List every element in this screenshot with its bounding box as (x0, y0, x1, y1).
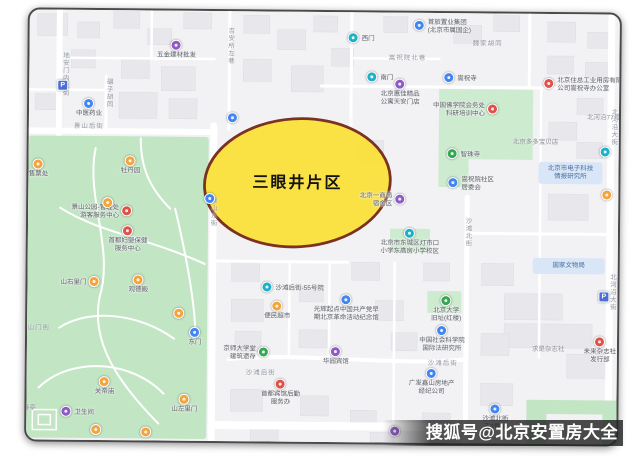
highlight-area-label: 三眼井片区 (197, 168, 397, 194)
pin-label: 牡丹园 (65, 167, 195, 176)
area-label: 北河沿77号院 (587, 111, 622, 121)
map-pin[interactable] (261, 281, 272, 292)
pin-label: 中医药业 (24, 109, 154, 118)
map-canvas[interactable]: 三眼井片区 五金建材批发中医药业西门售票处牡丹园景山公园-管理处游客服务中心观德… (24, 7, 622, 446)
pin-label: 首都宾馆后勤服务办 (215, 390, 345, 406)
map-pin[interactable] (489, 403, 500, 414)
pin-label: 中国佛学院会务处科研培训中心 (355, 101, 485, 117)
pin-label: 智珠寺 (461, 151, 481, 159)
map-pin[interactable] (178, 394, 189, 405)
pin-label: 西门 (362, 35, 375, 43)
map-pin[interactable] (99, 376, 110, 387)
map-pin[interactable] (32, 158, 43, 169)
map-pin[interactable] (394, 194, 405, 205)
map-pin[interactable] (102, 197, 113, 208)
map-pin[interactable] (173, 308, 184, 319)
map-pin[interactable] (366, 71, 377, 82)
pin-label: 嵩祝寺 (457, 75, 477, 83)
map-pin[interactable] (340, 294, 351, 305)
map-pin[interactable] (330, 346, 341, 357)
map-frame: 三眼井片区 五金建材批发中医药业西门售票处牡丹园景山公园-管理处游客服务中心观德… (24, 7, 622, 446)
civic-building-label: 国家文物局 (533, 258, 605, 275)
pin-label: 中国社会科学院国际法研究所 (377, 336, 507, 352)
map-pin[interactable] (121, 205, 132, 216)
pin-label: 首旅置业集团(北京市属国企) (428, 19, 471, 34)
pin-label: 沙滩后街-55号院 (275, 285, 323, 293)
map-pin[interactable] (404, 228, 415, 239)
map-pin[interactable] (90, 424, 101, 435)
street-label: 碾子胡同 (103, 78, 113, 108)
area-label: 万春亭 (24, 401, 36, 411)
map-pin[interactable] (436, 325, 447, 336)
pin-label: 广发鑫山房地产经纪公司 (367, 379, 497, 395)
map-pin[interactable] (394, 79, 405, 90)
street-label: 嵩祝院北巷 (362, 51, 452, 62)
pin-label: 山左里门 (119, 405, 249, 414)
map-pin[interactable] (60, 406, 71, 417)
parking-pin[interactable] (598, 291, 609, 302)
civic-building-label: 北京市电子科技情报研究所 (538, 162, 602, 185)
pin-label: 首都妇婴保健服务中心 (63, 237, 193, 253)
map-pin[interactable] (600, 146, 611, 157)
map-pin[interactable] (88, 276, 99, 287)
map-pin[interactable] (189, 327, 200, 338)
pin-label: 未来杂志社发行部 (535, 348, 622, 364)
map-pin[interactable] (204, 193, 215, 204)
map-pin[interactable] (258, 346, 269, 357)
map-pin[interactable] (271, 301, 282, 312)
pin-label: 观德殿 (73, 286, 203, 295)
map-pin[interactable] (171, 40, 182, 51)
pin-label: 南门 (380, 74, 393, 82)
pin-label: 北京住总工业用房有限公司嵩祝寺办公室 (557, 77, 622, 93)
street-label: 沙滩后街 (216, 366, 306, 377)
map-pin[interactable] (122, 225, 133, 236)
pin-label: 卫生间 (74, 409, 94, 417)
map-pin[interactable] (125, 155, 136, 166)
map-pin[interactable] (601, 189, 612, 200)
map-pin[interactable] (227, 112, 238, 123)
map-pin[interactable] (426, 368, 437, 379)
pin-label: 关帝庙 (40, 388, 170, 397)
pin-label: 西门 (24, 136, 88, 145)
map-pin[interactable] (447, 148, 458, 159)
watermark: 搜狐号@北京安置房大全 (383, 420, 623, 446)
map-pin[interactable] (543, 78, 554, 89)
map-pin[interactable] (487, 103, 498, 114)
map-pin[interactable] (275, 379, 286, 390)
street-label: 魏家胡同 (443, 37, 533, 48)
map-pin[interactable] (24, 124, 28, 135)
screenshot-stage: 三眼井片区 五金建材批发中医药业西门售票处牡丹园景山公园-管理处游客服务中心观德… (0, 0, 640, 456)
map-pin[interactable] (140, 426, 151, 437)
pin-label: 五金建材批发 (111, 51, 241, 60)
map-pin[interactable] (414, 20, 425, 31)
map-base-layers (24, 7, 622, 446)
map-pin[interactable] (594, 336, 605, 347)
map-pin[interactable] (132, 274, 143, 285)
street-label: 沙滩后街 (398, 357, 488, 368)
map-pin[interactable] (348, 32, 359, 43)
area-label: 北京多多宝贝店 (513, 136, 559, 146)
pin-label: 北京一商局宿舍区 (262, 191, 392, 207)
pin-label: 北京大学旧址(红楼) (381, 307, 511, 323)
pin-label: 华园宾馆 (271, 358, 401, 367)
parking-pin[interactable] (57, 80, 68, 91)
street-label: 陟山门街 (24, 321, 80, 332)
street-label: 景山后街 (44, 120, 134, 131)
pin-label: 嵩祝院社区居委会 (461, 176, 494, 191)
map-pin[interactable] (83, 98, 94, 109)
map-pin[interactable] (440, 295, 451, 306)
map-pin[interactable] (443, 72, 454, 83)
pin-label: 京师大学堂建筑遗存 (126, 344, 256, 360)
pin-label: 北京市东城区灯市口小学东高房小学校区 (345, 239, 475, 255)
map-pin[interactable] (447, 177, 458, 188)
pin-label: 山右里门 (24, 278, 86, 287)
